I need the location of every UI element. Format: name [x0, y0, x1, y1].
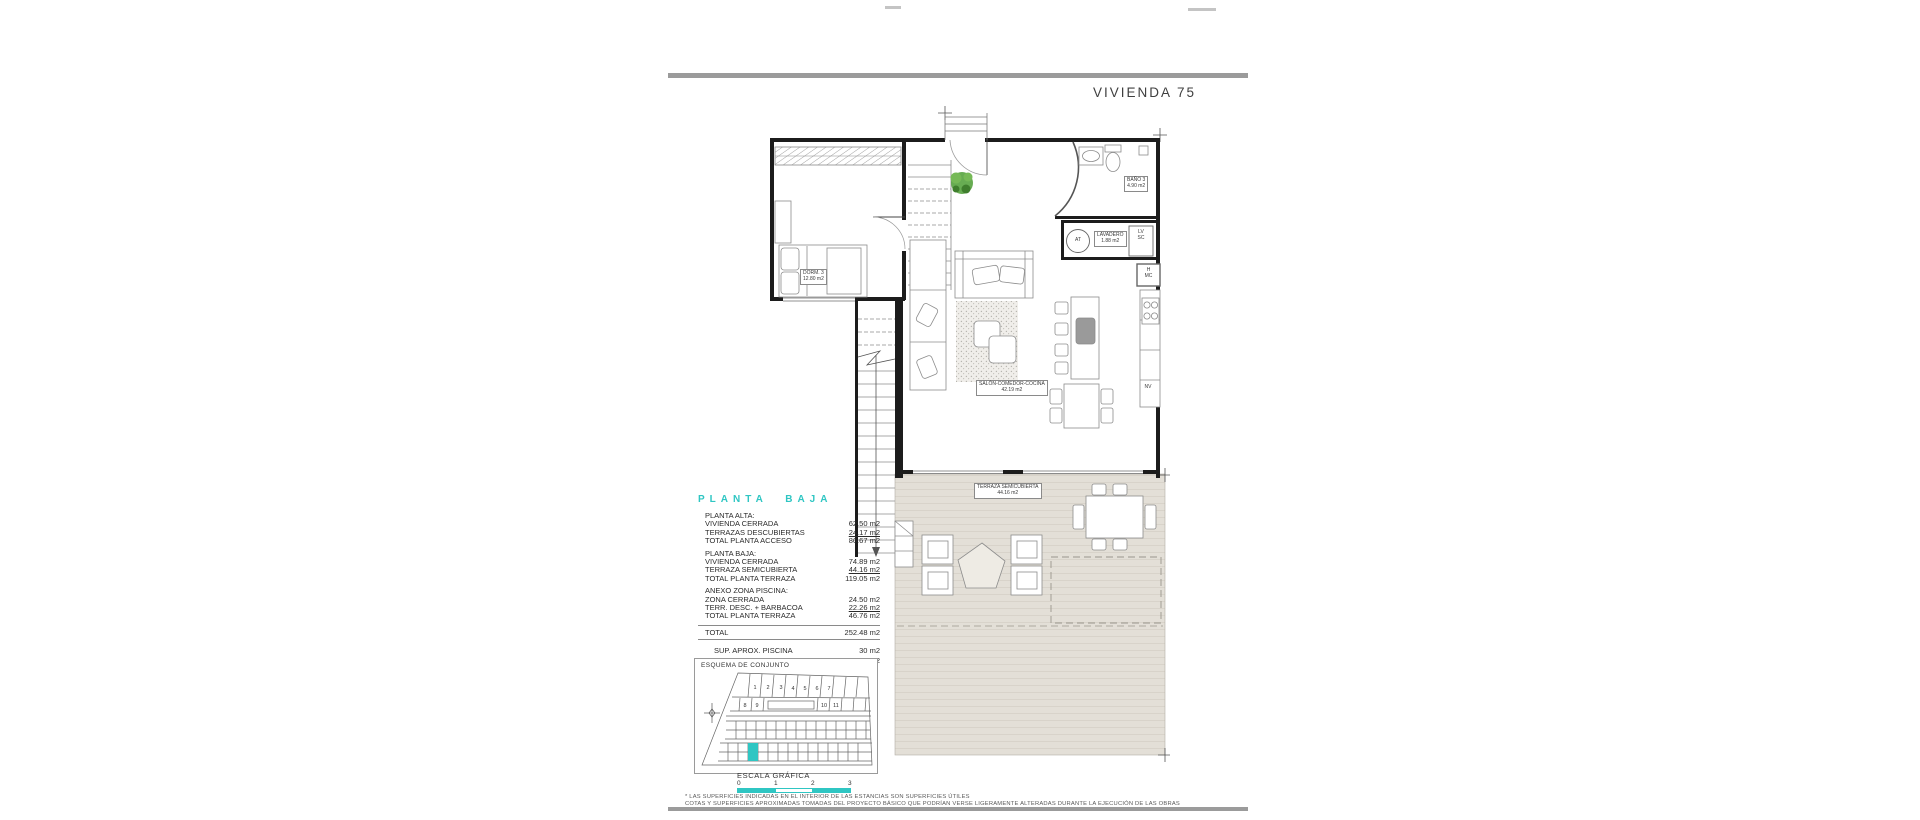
- room-area: 42.19 m2: [979, 388, 1045, 394]
- bbq-unit: [895, 521, 913, 567]
- svg-text:9: 9: [755, 703, 758, 709]
- appliance-label-lvsc: LVSC: [1129, 230, 1153, 242]
- coffee-table: [989, 336, 1016, 363]
- room-label-dorm: DORM. 3 12.80 m2: [800, 269, 827, 285]
- scale-tick: 1: [774, 780, 778, 787]
- svg-text:8: 8: [743, 703, 746, 709]
- svg-text:4: 4: [791, 686, 794, 692]
- summary-total-row: TOTAL252.48 m2: [698, 625, 880, 640]
- summary-section-planta-baja: PLANTA BAJA: VIVIENDA CERRADA74.89 m2 TE…: [698, 550, 880, 584]
- svg-text:2: 2: [766, 685, 769, 691]
- kitchen-dining-table: [1050, 384, 1113, 428]
- sofa: [955, 251, 1033, 298]
- appliance-label-hmc: HMC: [1137, 268, 1160, 280]
- room-label-terraza: TERRAZA SEMICUBIERTA 44.16 m2: [974, 483, 1042, 499]
- compass-icon: [704, 703, 720, 723]
- svg-text:7: 7: [827, 686, 830, 692]
- site-plan-title: ESQUEMA DE CONJUNTO: [701, 662, 877, 669]
- sink-icon: [1076, 318, 1095, 344]
- site-plan-box: ESQUEMA DE CONJUNTO: [694, 658, 878, 774]
- footer-note: * LAS SUPERFICIES INDICADAS EN EL INTERI…: [685, 794, 1165, 807]
- svg-text:5: 5: [803, 686, 806, 692]
- scale-tick: 0: [737, 780, 741, 787]
- room-area: 44.16 m2: [977, 491, 1039, 497]
- living-room: [910, 240, 1033, 390]
- top-divider: [668, 73, 1248, 78]
- page-title: VIVIENDA 75: [1093, 85, 1196, 100]
- plant-icon: [951, 172, 974, 194]
- summary-section-planta-alta: PLANTA ALTA: VIVIENDA CERRADA62.50 m2 TE…: [698, 512, 880, 546]
- svg-text:11: 11: [833, 703, 839, 709]
- room-area: 12.80 m2: [803, 277, 824, 283]
- plan-sheet: VIVIENDA 75: [0, 0, 1920, 820]
- highlighted-plot: [748, 743, 758, 761]
- room-label-salon: SALÓN-COMEDOR-COCINA 42.19 m2: [976, 380, 1048, 396]
- svg-text:10: 10: [821, 703, 827, 709]
- area-summary: PLANTA BAJA PLANTA ALTA: VIVIENDA CERRAD…: [698, 494, 880, 667]
- summary-row: SUP. APROX. PISCINA30 m2: [698, 646, 880, 657]
- kitchen: [1050, 290, 1160, 428]
- summary-row: TOTAL PLANTA TERRAZA46.76 m2: [698, 612, 880, 620]
- room-label-lavadero: LAVADERO 1.88 m2: [1094, 231, 1127, 247]
- site-plan-drawing: 1 2 3 4 5 6 7 8 9 10 11: [696, 669, 876, 769]
- decor-dash: [885, 6, 901, 9]
- appliance-label-at: AT: [1068, 238, 1088, 244]
- summary-row: TOTAL PLANTA TERRAZA119.05 m2: [698, 575, 880, 583]
- svg-text:3: 3: [779, 685, 782, 691]
- scale-bar: [737, 788, 851, 793]
- scale-ticks: 0 1 2 3: [737, 780, 867, 788]
- svg-text:6: 6: [815, 686, 818, 692]
- room-area: 1.88 m2: [1097, 239, 1124, 245]
- appliance-label-nv: NV: [1140, 385, 1156, 391]
- footer-line-1: * LAS SUPERFICIES INDICADAS EN EL INTERI…: [685, 794, 1165, 801]
- bedroom-door: [873, 217, 905, 249]
- scale-tick: 2: [811, 780, 815, 787]
- decor-dash: [1188, 8, 1216, 11]
- svg-text:1: 1: [753, 685, 756, 691]
- scale-box: ESCALA GRÁFICA 0 1 2 3: [737, 771, 867, 793]
- cooktop-icon: [1142, 298, 1159, 324]
- summary-section-anexo-piscina: ANEXO ZONA PISCINA: ZONA CERRADA24.50 m2…: [698, 587, 880, 621]
- wardrobe: [775, 147, 901, 165]
- scale-tick: 3: [848, 780, 852, 787]
- summary-row: TOTAL PLANTA ACCESO86.67 m2: [698, 537, 880, 545]
- room-area: 4.90 m2: [1127, 184, 1145, 190]
- scale-title: ESCALA GRÁFICA: [737, 771, 867, 780]
- summary-heading: PLANTA BAJA: [698, 494, 880, 505]
- room-label-bano: BAÑO 3 4.90 m2: [1124, 176, 1148, 192]
- bottom-divider: [668, 807, 1248, 811]
